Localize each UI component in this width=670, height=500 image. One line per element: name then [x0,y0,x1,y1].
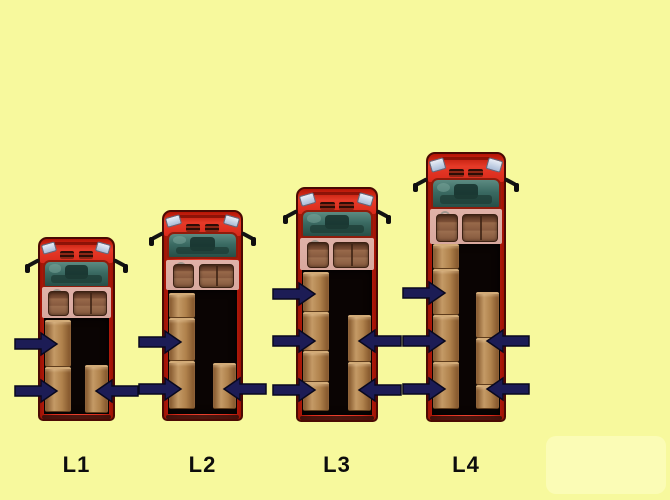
glass-glare [307,214,321,222]
side-mirror-left-head-icon [283,215,288,224]
cargo-box [433,244,459,269]
dashboard-shape-wide [310,225,364,233]
grille-right-icon [468,169,482,177]
truck-l3 [296,187,378,422]
seat-divider [351,244,353,266]
seat-divider [480,216,482,240]
passenger-bench-seat [199,264,235,288]
driver-seat [173,264,195,288]
cargo-box [169,361,195,409]
truck-l2 [162,210,243,421]
grille-right-icon [205,224,220,231]
side-mirror-right-head-icon [386,215,391,224]
headlight-right-icon [95,242,112,256]
cargo-box [85,365,108,413]
roof-line [442,157,491,160]
corner-highlight-panel [546,436,666,494]
dashboard-shape-wide [440,195,493,204]
truck-label-l4: L4 [452,452,480,478]
windshield [167,232,238,259]
glass-glare [49,264,62,272]
rear-bumper [430,416,502,420]
windshield [43,260,110,288]
grille-right-icon [339,202,354,210]
cab-interior [42,287,111,318]
truck-label-l1: L1 [63,452,91,478]
seat-divider [216,266,218,286]
rear-bumper [300,416,374,420]
headlight-right-icon [223,214,240,228]
side-mirror-right-head-icon [251,237,256,246]
side-mirror-right-head-icon [514,183,519,192]
grille-left-icon [186,224,201,231]
cargo-box [476,385,499,409]
driver-seat [307,242,329,268]
cab-interior [430,209,502,244]
cargo-box [303,351,329,382]
dashboard-shape-wide [176,247,230,254]
cargo-box [348,362,371,411]
side-mirror-left-head-icon [149,237,154,246]
grille-left-icon [320,202,335,210]
grille-left-icon [449,169,463,177]
cargo-box [476,292,499,338]
grille-right-icon [79,251,93,258]
side-mirror-left-head-icon [413,183,418,192]
driver-seat [48,291,69,316]
rear-bumper [166,415,239,419]
cargo-box [45,367,71,412]
side-mirror-left-head-icon [25,264,30,273]
cab-interior [166,260,239,290]
seat-divider [90,293,92,314]
passenger-bench-seat [333,242,369,268]
truck-l4 [426,152,506,422]
cargo-box [303,382,329,411]
cargo-box [169,293,195,318]
cargo-box [433,362,459,409]
cargo-box [303,312,329,351]
glass-glare [173,236,186,244]
roof-line [178,215,227,218]
truck-label-l3: L3 [323,452,351,478]
truck-length-diagram: L1 L2 L3 L4 [0,0,670,500]
cargo-box [45,320,71,367]
cargo-box [169,318,195,361]
passenger-bench-seat [462,214,497,242]
glass-glare [437,183,450,192]
headlight-right-icon [357,192,375,206]
grille-left-icon [60,251,74,258]
windshield [431,178,501,209]
cab-interior [300,238,374,270]
rear-bumper [42,415,111,419]
truck-l1 [38,237,115,421]
cargo-box [433,315,459,362]
headlight-right-icon [486,157,504,172]
headlight-left-icon [41,242,58,256]
dashboard-shape-wide [51,275,101,283]
headlight-left-icon [429,157,447,172]
roof-line [53,242,100,245]
cargo-box [303,272,329,312]
cargo-box [213,363,236,409]
cargo-box [348,315,371,362]
cargo-box [476,338,499,385]
roof-line [312,192,362,195]
cargo-box [433,269,459,315]
truck-label-l2: L2 [189,452,217,478]
side-mirror-right-head-icon [123,264,128,273]
windshield [301,210,373,238]
driver-seat [436,214,457,242]
passenger-bench-seat [73,291,107,316]
headlight-left-icon [165,214,182,228]
